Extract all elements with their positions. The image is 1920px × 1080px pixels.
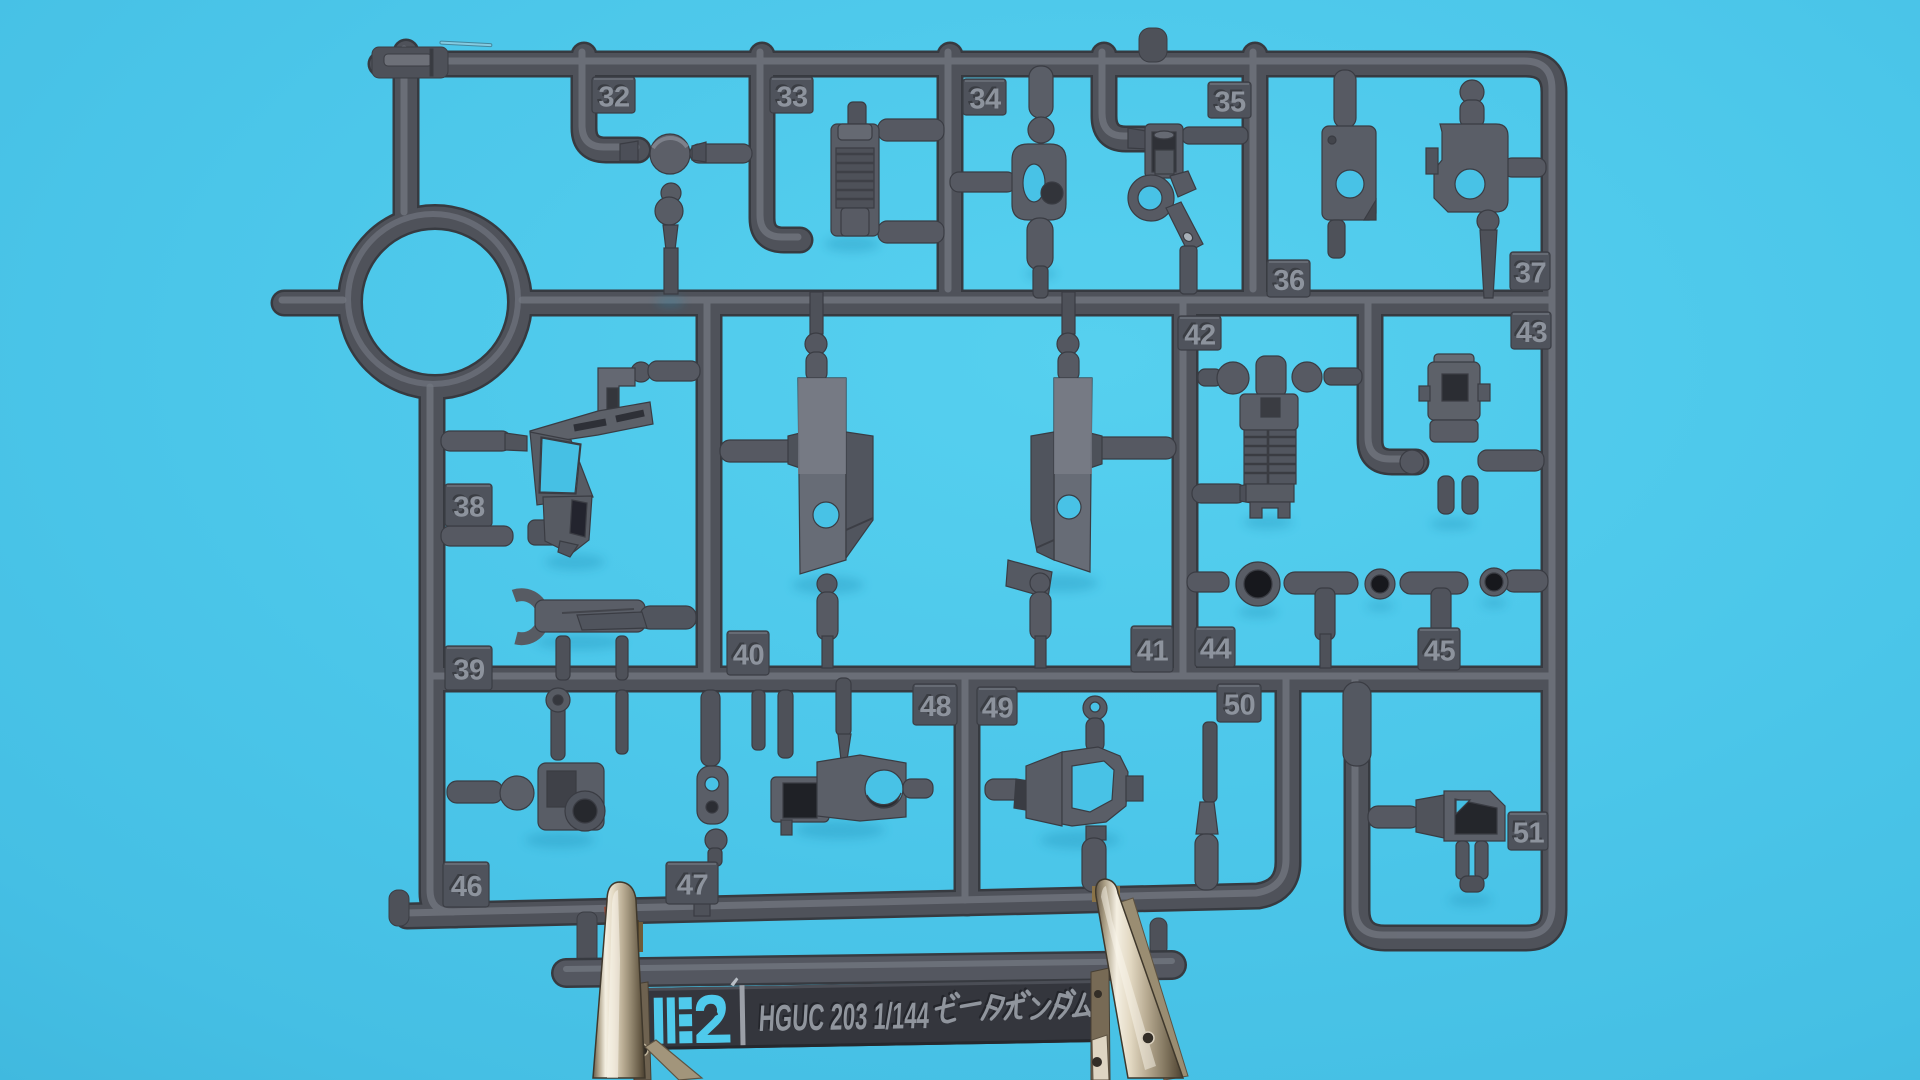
svg-text:35: 35	[1214, 87, 1246, 119]
svg-text:40: 40	[733, 640, 764, 672]
svg-text:33: 33	[776, 82, 808, 114]
svg-text:HGUC 203 1/144: HGUC 203 1/144	[758, 995, 931, 1039]
svg-text:45: 45	[1424, 636, 1456, 668]
svg-text:36: 36	[1273, 265, 1305, 297]
svg-text:37: 37	[1515, 258, 1546, 290]
svg-text:38: 38	[453, 492, 485, 524]
svg-text:41: 41	[1137, 636, 1169, 668]
svg-text:43: 43	[1516, 317, 1548, 349]
svg-text:39: 39	[453, 655, 485, 687]
svg-text:48: 48	[920, 691, 952, 723]
svg-text:51: 51	[1513, 818, 1545, 850]
svg-text:46: 46	[451, 871, 483, 903]
svg-text:34: 34	[969, 84, 1001, 116]
svg-text:32: 32	[598, 82, 629, 114]
svg-text:49: 49	[982, 693, 1014, 725]
svg-text:47: 47	[677, 870, 708, 902]
svg-text:44: 44	[1200, 634, 1232, 666]
svg-text:50: 50	[1224, 690, 1255, 722]
svg-text:42: 42	[1184, 320, 1215, 352]
